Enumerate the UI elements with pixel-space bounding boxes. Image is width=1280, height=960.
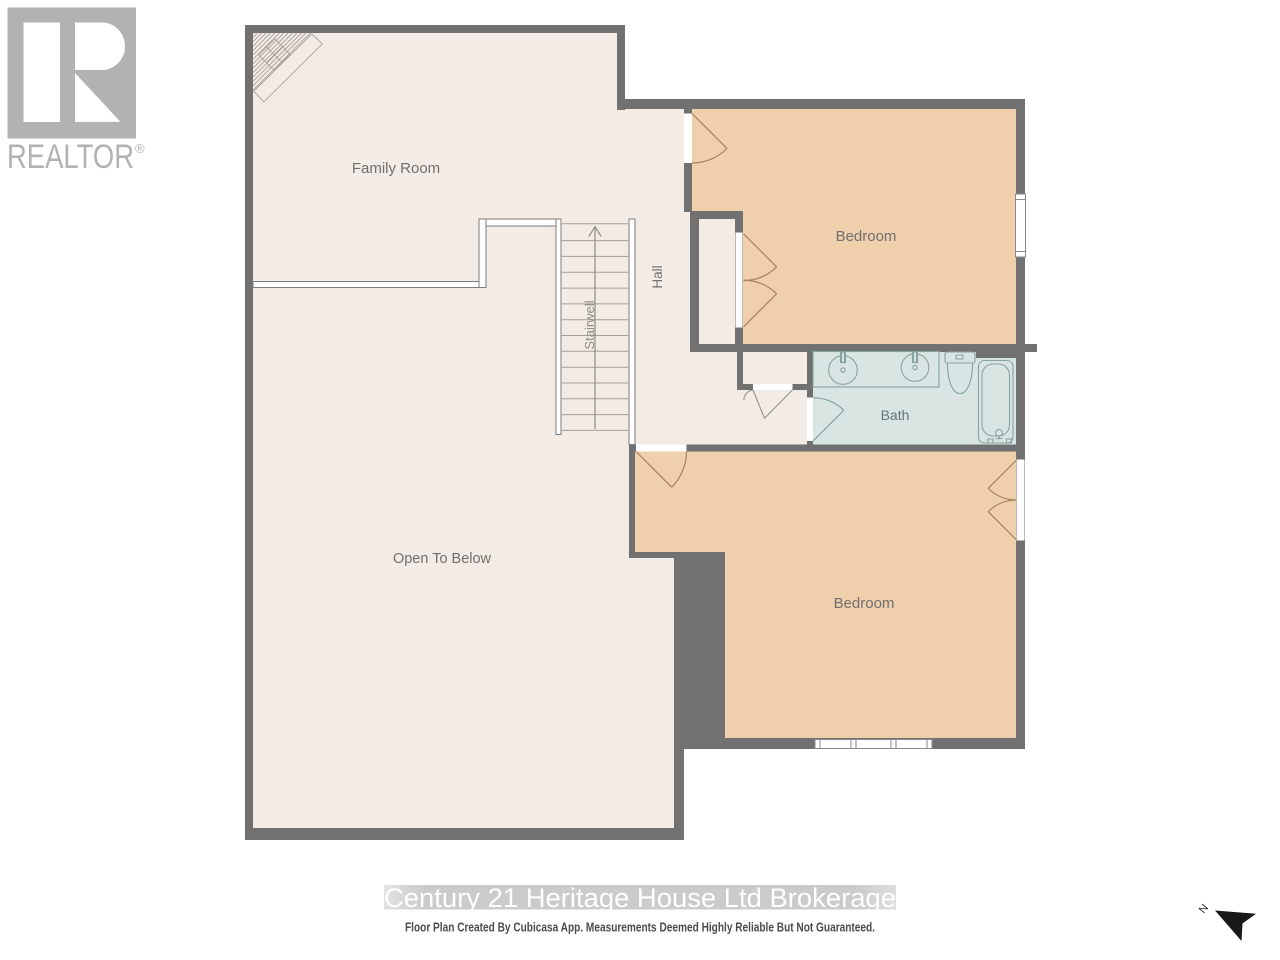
svg-text:Family Room: Family Room [352,160,440,177]
svg-text:REALTOR: REALTOR [7,138,134,176]
svg-text:Bath: Bath [881,407,910,423]
svg-text:Century 21 Heritage House Ltd: Century 21 Heritage House Ltd Brokerage [384,883,896,913]
svg-text:®: ® [135,141,145,156]
svg-text:Stairwell: Stairwell [582,300,597,349]
svg-text:N: N [1197,902,1211,916]
svg-text:Floor Plan Created By Cubicasa: Floor Plan Created By Cubicasa App. Meas… [405,920,875,935]
svg-text:Hall: Hall [650,265,665,288]
svg-text:Open To Below: Open To Below [393,551,492,567]
svg-text:Bedroom: Bedroom [834,595,895,612]
svg-text:Bedroom: Bedroom [836,228,897,245]
